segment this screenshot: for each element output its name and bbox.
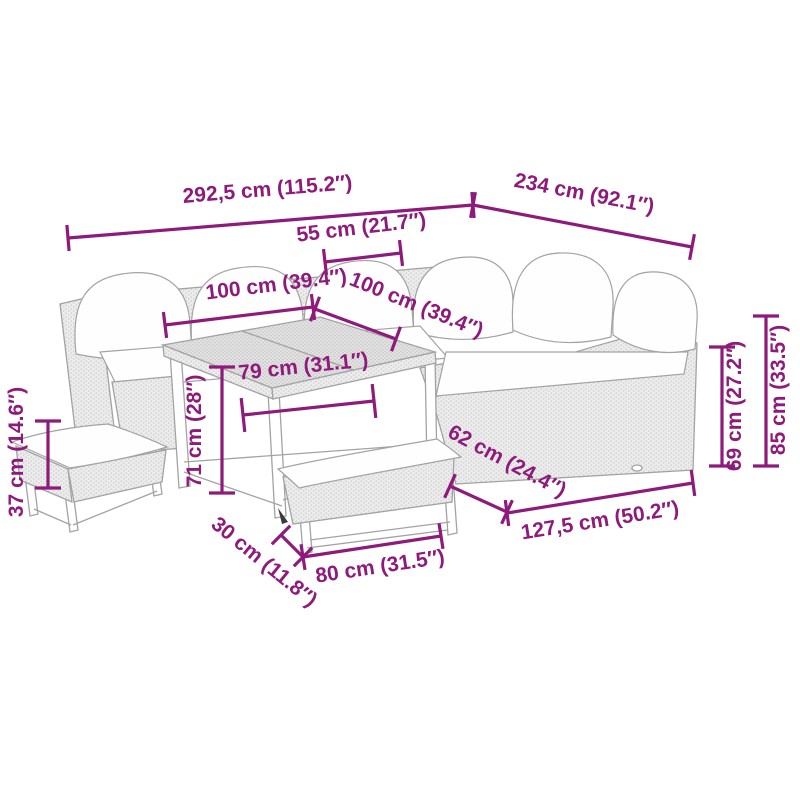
dim-label: 292,5 cm (115.2″)	[182, 171, 353, 208]
dim-label: 69 cm (27.2″)	[723, 341, 746, 471]
dim-total-height: 85 cm (33.5″)	[753, 316, 790, 466]
stool	[12, 424, 167, 532]
dim-label: 71 cm (28″)	[183, 375, 206, 488]
dim-label: 234 cm (92.1″)	[512, 169, 656, 218]
back-cushion	[613, 272, 697, 353]
dim-seat-back-height: 69 cm (27.2″)	[709, 341, 746, 471]
dim-label: 85 cm (33.5″)	[767, 325, 790, 455]
dim-total-depth: 234 cm (92.1″)	[471, 169, 695, 260]
stool-stretcher	[34, 509, 71, 525]
brand-tag	[632, 465, 642, 471]
dim-table-height: 71 cm (28″)	[183, 367, 235, 493]
product-dimension-diagram: 292,5 cm (115.2″) 234 cm (92.1″) 55 cm (…	[0, 0, 800, 800]
back-cushion	[512, 253, 613, 343]
diagram-canvas: 292,5 cm (115.2″) 234 cm (92.1″) 55 cm (…	[0, 0, 800, 800]
dim-label: 37 cm (14.6″)	[5, 387, 28, 517]
dim-label: 127,5 cm (50.2″)	[519, 497, 680, 545]
